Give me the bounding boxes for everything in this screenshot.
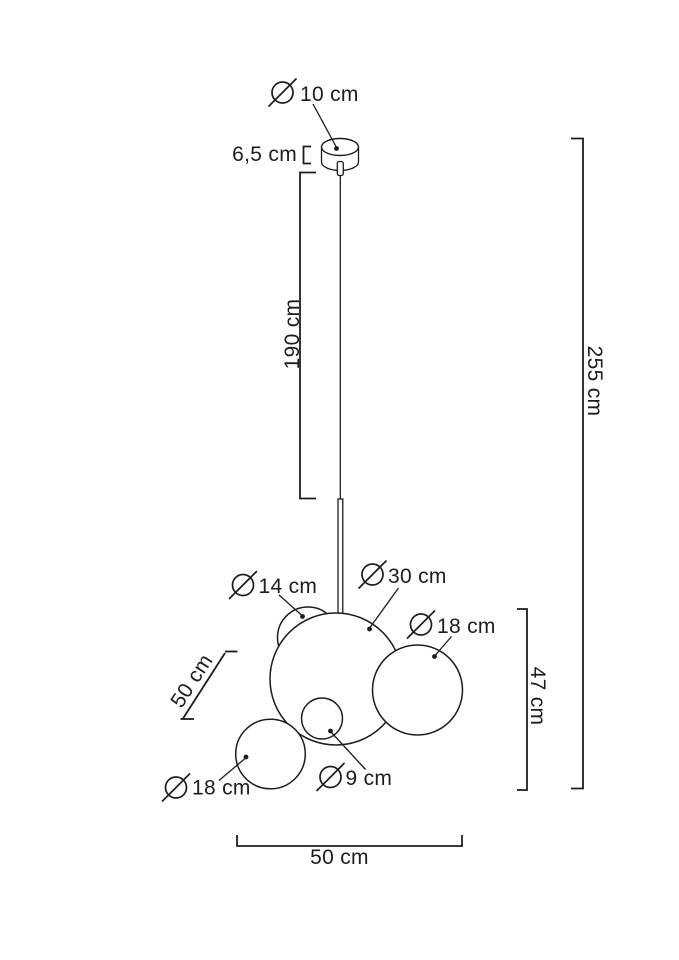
cluster-depth-label: 50 cm [166,650,217,712]
canopy-diameter-label: 10 cm [300,83,359,106]
diameter-icon [229,571,257,599]
leader-30cm [367,588,398,631]
cord-grip [337,162,343,176]
sphere-9cm-label: 9 cm [346,767,393,790]
canopy-height-bracket [304,147,312,164]
lamp-stem [338,499,343,614]
sphere-9cm [302,698,343,739]
cable-length-label: 190 cm [281,299,304,370]
diameter-icon [269,79,297,107]
diameter-icon [407,611,435,639]
sphere-cluster [236,607,463,789]
canopy-height-label: 6,5 cm [232,143,297,166]
diameter-icon [162,774,190,802]
cluster-width-label: 50 cm [310,846,369,869]
sphere-14cm-label: 14 cm [259,575,318,598]
total-height-bracket [571,139,583,789]
cluster-width-bracket [237,835,462,846]
cluster-height-label: 47 cm [526,667,549,726]
total-height-label: 255 cm [583,346,606,417]
lamp-dimension-diagram: 10 cm 6,5 cm 190 cm 255 cm 14 cm 30 cm 1… [0,0,679,960]
sphere-30cm-label: 30 cm [388,565,447,588]
sphere-18cm-right [373,645,463,735]
diameter-icon [359,561,387,589]
ceiling-canopy [322,139,359,176]
canopy-top-rim [322,139,359,156]
sphere-18cm-bottom-left-label: 18 cm [192,777,251,800]
diameter-icon [317,763,345,791]
cluster-height-bracket [517,609,527,790]
diagram-canvas: 10 cm 6,5 cm 190 cm 255 cm 14 cm 30 cm 1… [0,0,679,960]
sphere-18cm-right-label: 18 cm [437,615,496,638]
